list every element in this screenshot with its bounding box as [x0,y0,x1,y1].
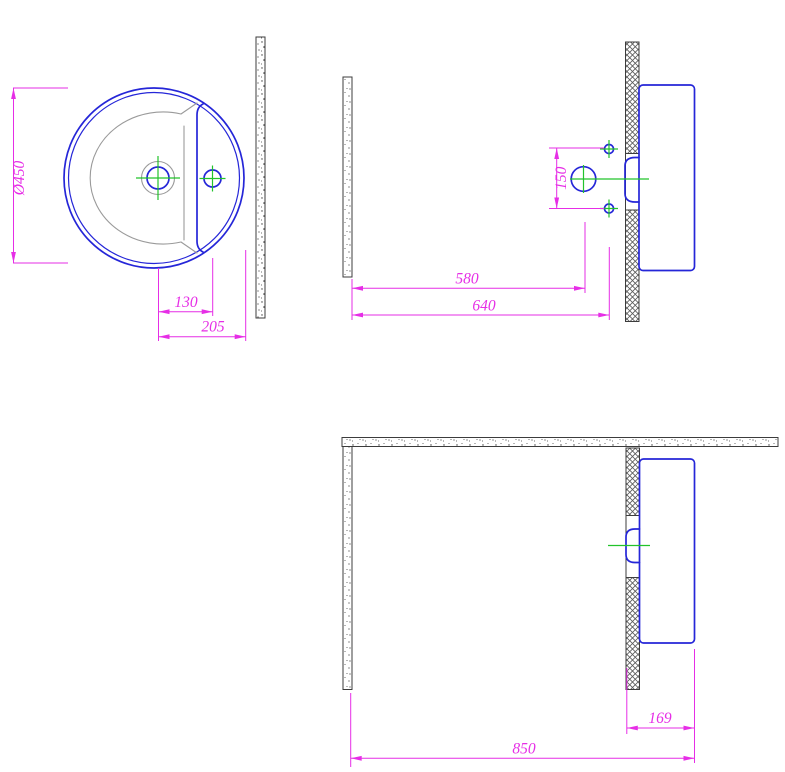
drawing-page: Ø450 130 205 150 580 64 [0,0,785,772]
view-top: Ø450 130 205 [11,37,265,341]
arrowhead [11,252,16,263]
dim-drain-to-tap-label: 130 [174,294,198,311]
dim-hole-spacing-label: 150 [553,166,570,190]
basin-body [639,85,695,271]
wall-section [256,37,265,318]
dim-wall-to-drain-label: 580 [455,271,479,288]
basin-body [640,459,695,643]
side-wall-section [343,77,352,277]
arrowhead [202,309,213,314]
side-wall-section [343,447,352,690]
view-front: 150 580 640 [343,42,695,322]
arrowhead [352,313,363,318]
arrowhead [554,198,559,209]
arrowhead [159,309,170,314]
mounting-wall-hatch-lower [626,578,640,690]
arrowhead [574,286,585,291]
arrowhead [351,756,362,761]
tap-centerline-cross [200,166,226,192]
mounting-wall-hatch-upper [626,42,640,154]
drawing-canvas: Ø450 130 205 150 580 64 [0,0,785,772]
arrowhead [554,148,559,159]
arrowhead [159,334,170,339]
ceiling-section [342,438,778,447]
dim-drain-to-rim-label: 205 [201,319,225,336]
arrowhead [235,334,246,339]
dim-wall-to-holes-label: 640 [472,298,496,315]
mounting-bracket-profile [625,158,639,203]
mounting-wall-hatch-upper [626,448,640,516]
arrowhead [684,726,695,731]
mounting-hole-upper-cross [600,140,618,158]
arrowhead [11,88,16,99]
dim-overall-span-label: 850 [512,741,536,758]
dim-diameter-label: Ø450 [11,161,28,197]
arrowhead [627,726,638,731]
drain-centerline [570,165,649,193]
mounting-wall-hatch-lower [626,210,640,322]
drain-centerline-cross [136,156,180,200]
arrowhead [684,756,695,761]
arrowhead [352,286,363,291]
arrowhead [598,313,609,318]
dim-overhang-depth-label: 169 [648,710,672,727]
view-side: 169 850 [342,438,778,768]
